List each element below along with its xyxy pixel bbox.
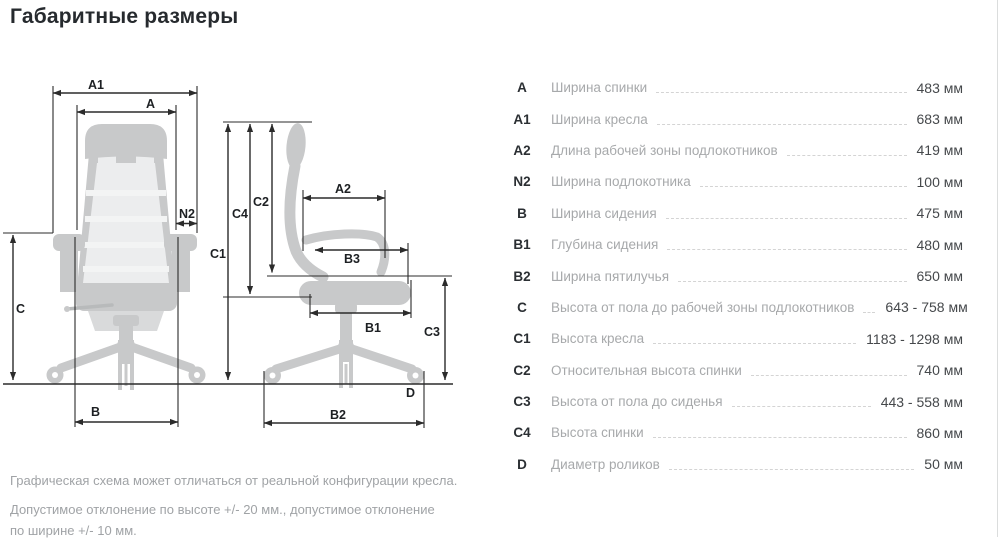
table-row: B Ширина сидения 475 мм [503, 198, 963, 229]
leader-dots [700, 185, 907, 187]
table-row: C4 Высота спинки 860 мм [503, 417, 963, 448]
dim-label-n2: N2 [179, 207, 195, 221]
table-row: A1 Ширина кресла 683 мм [503, 103, 963, 134]
dim-code: C4 [503, 425, 541, 440]
dim-label-a: A [146, 97, 155, 111]
dim-label-b: B [91, 405, 100, 419]
dim-value: 860 мм [917, 425, 964, 441]
table-row: C Высота от пола до рабочей зоны подлоко… [503, 292, 963, 323]
page-right-divider [997, 0, 998, 537]
dim-label-c1: C1 [210, 247, 226, 261]
leader-dots [787, 154, 907, 156]
dim-description: Длина рабочей зоны подлокотников [551, 143, 778, 158]
dim-description: Высота кресла [551, 331, 644, 346]
table-row: C1 Высота кресла 1183 - 1298 мм [503, 323, 963, 354]
table-row: N2 Ширина подлокотника 100 мм [503, 166, 963, 197]
dim-description: Ширина кресла [551, 112, 648, 127]
dim-description: Диаметр роликов [551, 457, 660, 472]
dim-code: B [503, 206, 541, 221]
dim-label-c4: C4 [232, 207, 248, 221]
dim-value: 1183 - 1298 мм [866, 331, 963, 347]
dim-label-a2: A2 [335, 182, 351, 196]
chair-dimensions-diagram: A1 A N2 C B C1 C4 C2 A2 B3 B1 C3 D B2 [0, 70, 480, 445]
leader-dots [653, 342, 856, 344]
leader-dots [678, 280, 906, 282]
table-row: A2 Длина рабочей зоны подлокотников 419 … [503, 135, 963, 166]
armrest-right [164, 234, 197, 251]
leader-dots [656, 91, 906, 93]
leader-dots [732, 405, 871, 407]
dimensions-table: A Ширина спинки 483 мм A1 Ширина кресла … [503, 72, 963, 480]
dim-value: 483 мм [917, 80, 964, 96]
dim-code: B2 [503, 269, 541, 284]
leader-dots [667, 248, 906, 250]
leader-dots [657, 123, 907, 125]
table-row: C3 Высота от пола до сиденья 443 - 558 м… [503, 386, 963, 417]
dim-code: C2 [503, 363, 541, 378]
dim-code: A2 [503, 143, 541, 158]
leader-dots [669, 468, 914, 470]
chair-front-view [47, 124, 206, 390]
page-title: Габаритные размеры [10, 5, 238, 29]
dim-label-b3: B3 [344, 252, 360, 266]
table-row: B2 Ширина пятилучья 650 мм [503, 260, 963, 291]
dim-value: 443 - 558 мм [881, 394, 963, 410]
dim-description: Ширина сидения [551, 206, 657, 221]
table-row: D Диаметр роликов 50 мм [503, 449, 963, 480]
dim-value: 740 мм [917, 362, 964, 378]
dim-code: A [503, 80, 541, 95]
dim-description: Глубина сидения [551, 237, 658, 252]
dim-description: Высота от пола до рабочей зоны подлокотн… [551, 300, 854, 315]
dim-code: B1 [503, 237, 541, 252]
dim-code: A1 [503, 112, 541, 127]
dim-code: C [503, 300, 541, 315]
leader-dots [863, 311, 875, 313]
dim-description: Ширина спинки [551, 80, 647, 95]
armrest-left [53, 234, 85, 251]
dim-value: 475 мм [917, 205, 964, 221]
dim-description: Высота от пола до сиденья [551, 394, 723, 409]
dim-value: 480 мм [917, 237, 964, 253]
dim-value: 643 - 758 мм [885, 299, 967, 315]
dim-label-c: C [16, 302, 25, 316]
dim-code: D [503, 457, 541, 472]
dim-code: C1 [503, 331, 541, 346]
headrest-front [85, 124, 167, 159]
note-tolerance: Допустимое отклонение по высоте +/- 20 м… [10, 499, 442, 541]
dim-code: N2 [503, 174, 541, 189]
dim-value: 683 мм [917, 111, 964, 127]
dim-label-b2: B2 [330, 408, 346, 422]
note-schema-disclaimer: Графическая схема может отличаться от ре… [10, 470, 457, 491]
leader-dots [653, 436, 907, 438]
dim-label-a1: A1 [88, 78, 104, 92]
dim-value: 100 мм [917, 174, 964, 190]
dim-label-c3: C3 [424, 325, 440, 339]
dim-code: C3 [503, 394, 541, 409]
seat-side [299, 281, 411, 305]
dim-label-b1: B1 [365, 321, 381, 335]
dim-description: Ширина подлокотника [551, 174, 691, 189]
dim-description: Высота спинки [551, 425, 644, 440]
leader-dots [751, 374, 907, 376]
dim-description: Ширина пятилучья [551, 269, 669, 284]
table-row: B1 Глубина сидения 480 мм [503, 229, 963, 260]
dim-label-d: D [406, 386, 415, 400]
dim-value: 650 мм [917, 268, 964, 284]
leader-dots [666, 217, 907, 219]
table-row: A Ширина спинки 483 мм [503, 72, 963, 103]
dim-description: Относительная высота спинки [551, 363, 742, 378]
dim-value: 50 мм [924, 456, 963, 472]
dim-label-c2: C2 [253, 195, 269, 209]
dim-value: 419 мм [917, 142, 964, 158]
table-row: C2 Относительная высота спинки 740 мм [503, 355, 963, 386]
